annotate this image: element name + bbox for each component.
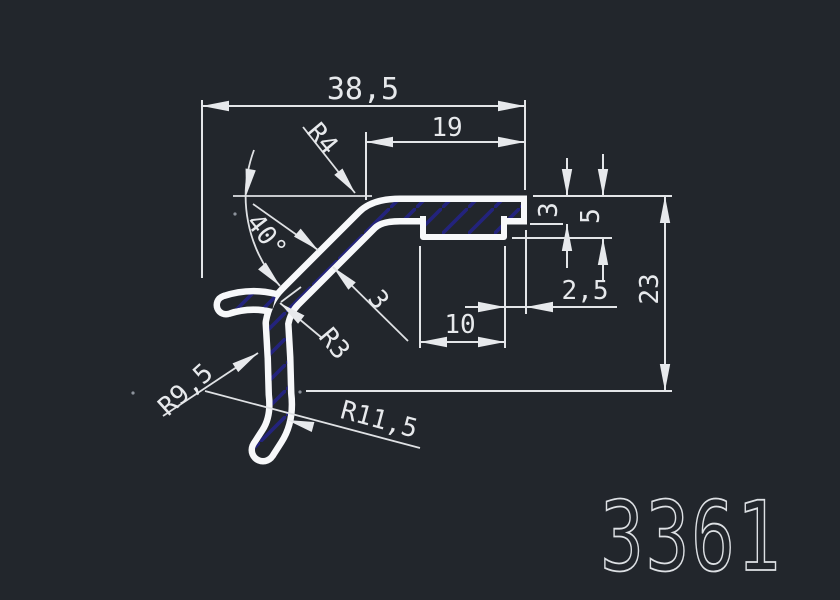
dim-label-rib-width: 10	[444, 310, 475, 340]
part-number: 3361	[600, 481, 782, 593]
blip-mark	[131, 391, 134, 394]
dim-label-rib-offset: 2,5	[562, 276, 609, 306]
blip-mark	[298, 390, 301, 393]
dim-label-total-height: 23	[635, 273, 665, 304]
blip-mark	[233, 212, 236, 215]
dim-label-arm-thickness: 3	[534, 202, 564, 218]
dim-label-rib-depth: 5	[576, 208, 606, 224]
dim-label-total-width: 38,5	[327, 72, 399, 107]
dim-label-top-width: 19	[431, 113, 462, 143]
cad-drawing-window: 38,5 19 3 5	[0, 0, 840, 600]
cad-drawing-canvas: 38,5 19 3 5	[0, 0, 840, 600]
